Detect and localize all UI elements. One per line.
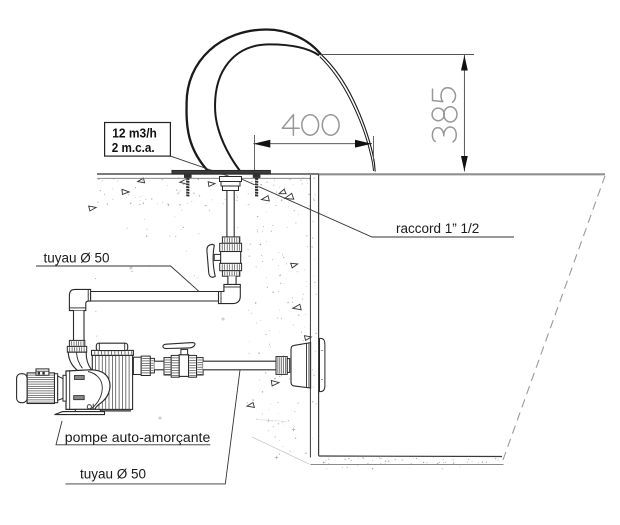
svg-text:2 m.c.a.: 2 m.c.a. [112, 140, 155, 155]
svg-text:tuyau Ø 50: tuyau Ø 50 [80, 467, 146, 482]
svg-text:tuyau Ø 50: tuyau Ø 50 [44, 251, 110, 266]
svg-text:12 m3/h: 12 m3/h [112, 125, 157, 140]
svg-text:raccord 1” 1/2: raccord 1” 1/2 [396, 221, 479, 236]
svg-text:pompe auto-amorçante: pompe auto-amorçante [65, 430, 211, 445]
